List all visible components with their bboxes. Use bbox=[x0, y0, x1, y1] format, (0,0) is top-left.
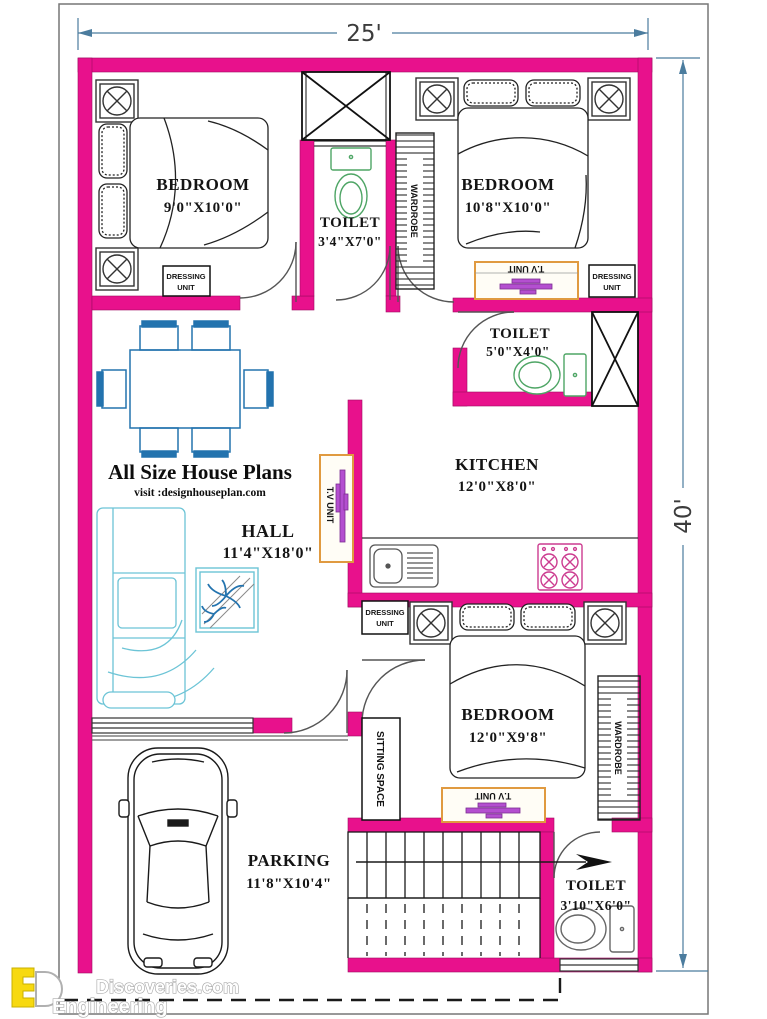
toilet1-name: TOILET bbox=[320, 215, 380, 231]
ceiling-fan-icon bbox=[96, 80, 138, 122]
hall-size: 11'4"X18'0" bbox=[223, 545, 314, 562]
brand-website: visit :designhouseplan.com bbox=[134, 487, 266, 499]
dressing-label-line2: UNIT bbox=[376, 619, 394, 628]
car-icon bbox=[119, 748, 237, 974]
height-dimension-label: 40' bbox=[671, 498, 697, 534]
hall-window bbox=[92, 718, 253, 733]
wardrobe-bedroom3: WARDROBE bbox=[598, 676, 640, 820]
wardrobe-label: WARDROBE bbox=[613, 721, 623, 775]
parking-size: 11'8"X10'4" bbox=[246, 876, 332, 892]
tv-unit-label: T.V UNIT bbox=[507, 264, 544, 274]
toilet1-size: 3'4"X7'0" bbox=[318, 234, 382, 249]
watermark-word: Engineering bbox=[52, 996, 168, 1018]
width-dimension-label: 25' bbox=[346, 21, 382, 47]
tv-unit-label: T.V UNIT bbox=[325, 487, 335, 524]
tv-unit-label: T.V UNIT bbox=[474, 791, 511, 801]
bedroom3-size: 12'0"X9'8" bbox=[469, 730, 547, 746]
bedroom3-name: BEDROOM bbox=[461, 705, 554, 724]
parking-name: PARKING bbox=[248, 851, 331, 870]
pillow-icon bbox=[99, 184, 127, 238]
pillow-icon bbox=[460, 604, 514, 630]
wardrobe-bedroom2: WARDROBE bbox=[396, 133, 434, 289]
tv-unit-hall: T.V UNIT bbox=[320, 455, 353, 562]
pillow-icon bbox=[99, 124, 127, 178]
shaft-middle-icon bbox=[592, 312, 638, 406]
toilet2-wc-icon bbox=[514, 354, 586, 396]
watermark-site: Discoveries.com bbox=[96, 977, 239, 997]
bedroom1-size: 9'0"X10'0" bbox=[164, 200, 242, 216]
dressing-label-line1: DRESSING bbox=[592, 272, 631, 281]
bedroom1-name: BEDROOM bbox=[156, 175, 249, 194]
ceiling-fan-icon bbox=[584, 602, 626, 644]
floor-plan-page: 25' 40' bbox=[0, 0, 767, 1019]
bedroom2-size: 10'8"X10'0" bbox=[465, 200, 551, 216]
toilet3-name: TOILET bbox=[566, 878, 626, 894]
brand-title: All Size House Plans bbox=[108, 460, 292, 484]
hall-name: HALL bbox=[241, 521, 294, 541]
shaft-top-icon bbox=[302, 72, 390, 140]
sitting-space: SITTING SPACE bbox=[362, 718, 400, 820]
tv-unit-bedroom3: T.V UNIT bbox=[442, 788, 545, 822]
ceiling-fan-icon bbox=[96, 248, 138, 290]
toilet2-size: 5'0"X4'0" bbox=[486, 344, 550, 359]
pillow-icon bbox=[464, 80, 518, 106]
logo-e-icon bbox=[12, 968, 34, 1007]
dressing-label-line1: DRESSING bbox=[166, 272, 205, 281]
kitchen-sink-icon bbox=[370, 545, 438, 587]
dressing-label-line2: UNIT bbox=[603, 283, 621, 292]
toilet3-size: 3'10"X6'0" bbox=[561, 898, 632, 913]
ceiling-fan-icon bbox=[410, 602, 452, 644]
dressing-unit-bedroom2: DRESSING UNIT bbox=[589, 265, 635, 297]
kitchen-stove-icon bbox=[538, 544, 582, 590]
dressing-unit-bedroom1: DRESSING UNIT bbox=[163, 266, 210, 296]
dressing-unit-bedroom3: DRESSING UNIT bbox=[362, 601, 408, 634]
wardrobe-label: WARDROBE bbox=[409, 184, 419, 238]
pillow-icon bbox=[526, 80, 580, 106]
bedroom2-name: BEDROOM bbox=[461, 175, 554, 194]
kitchen-name: KITCHEN bbox=[455, 455, 539, 474]
sitting-space-label: SITTING SPACE bbox=[374, 731, 385, 807]
toilet2-name: TOILET bbox=[490, 326, 550, 342]
pillow-icon bbox=[521, 604, 575, 630]
dressing-label-line1: DRESSING bbox=[365, 608, 404, 617]
kitchen-size: 12'0"X8'0" bbox=[458, 479, 536, 495]
dressing-label-line2: UNIT bbox=[177, 283, 195, 292]
tv-unit-bedroom2: T.V UNIT bbox=[475, 262, 578, 299]
ceiling-fan-icon bbox=[588, 78, 630, 120]
floor-plan-drawing: 25' 40' bbox=[0, 0, 767, 1019]
ceiling-fan-icon bbox=[416, 78, 458, 120]
